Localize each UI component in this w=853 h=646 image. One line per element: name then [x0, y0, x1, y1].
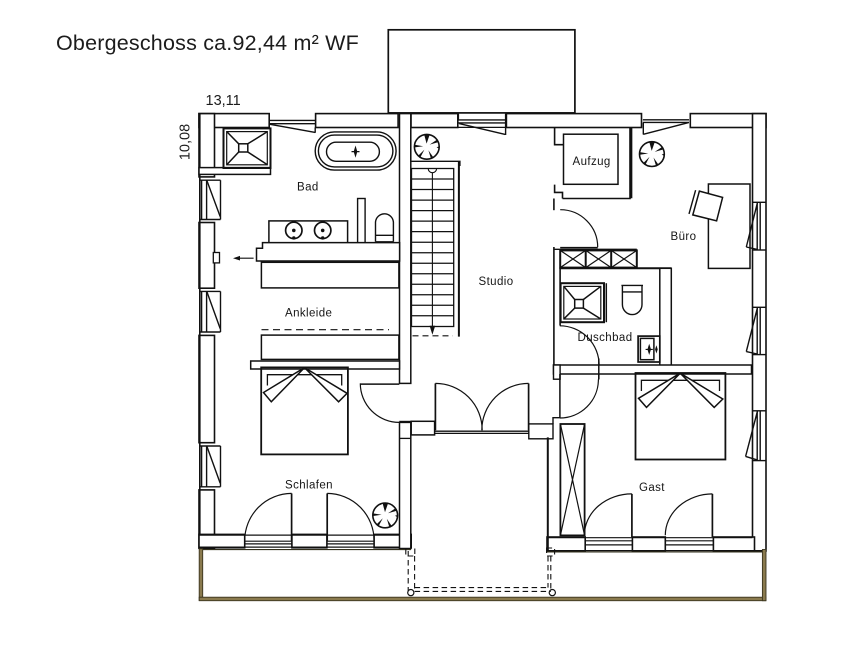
svg-text:Büro: Büro	[671, 231, 697, 243]
svg-text:Schlafen: Schlafen	[285, 480, 333, 492]
svg-text:Ankleide: Ankleide	[285, 308, 332, 320]
svg-text:Gast: Gast	[639, 482, 665, 494]
svg-text:Bad: Bad	[297, 182, 319, 194]
svg-text:Duschbad: Duschbad	[578, 332, 633, 344]
svg-text:Aufzug: Aufzug	[573, 156, 611, 168]
svg-text:10,08: 10,08	[178, 124, 194, 160]
svg-text:Studio: Studio	[479, 276, 514, 288]
svg-text:Obergeschoss ca.92,44 m² WF: Obergeschoss ca.92,44 m² WF	[56, 31, 359, 55]
svg-text:13,11: 13,11	[206, 93, 241, 109]
